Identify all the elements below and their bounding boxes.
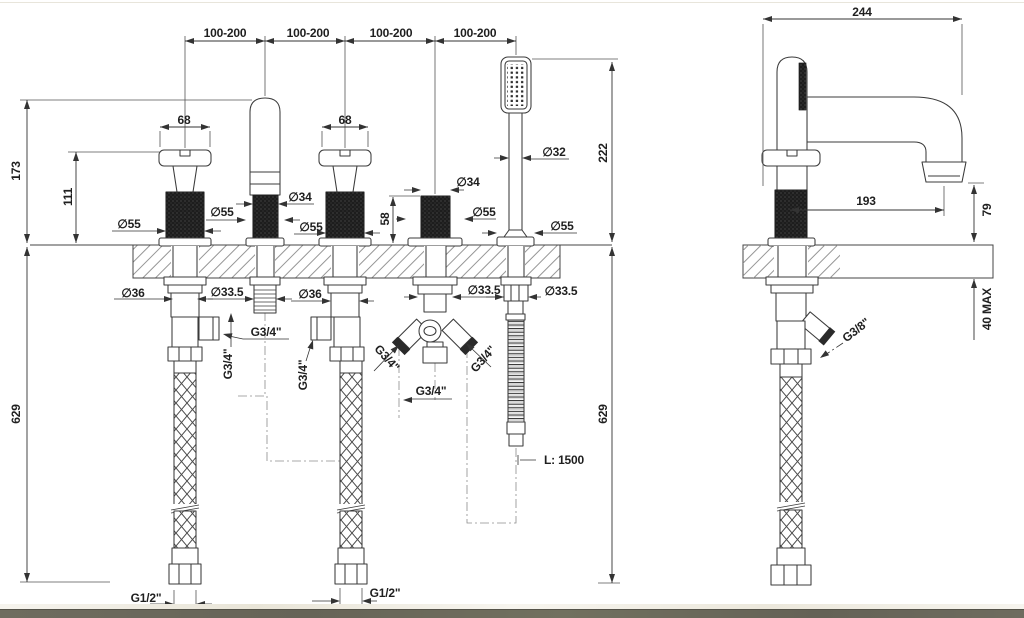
dim-dia-handle1-knurl: ∅55 [117,218,140,230]
dim-dia-diverter-knurl: ∅34 [456,176,479,188]
spout-front [246,98,284,313]
dim-deck-max-thickness: 40 MAX [981,288,993,330]
dim-thread-supply-right: G1/2" [370,587,401,599]
dim-spout-projection: 193 [856,195,875,207]
dim-dia-shower-base: ∅55 [550,220,573,232]
dim-handle-height: 111 [62,188,74,206]
dim-spout-reach: 244 [852,6,871,18]
bottom-strip [0,609,1024,618]
spout-side [807,97,962,162]
drawing-canvas [0,0,1024,618]
valve-handle-right [311,150,371,584]
dim-handshower-height: 222 [597,143,609,162]
dim-handle1-width: 68 [178,114,191,126]
dim-dia-spout-shank: ∅33.5 [211,286,244,298]
diverter [392,196,478,363]
dim-thread-handle2-outlet: G3/4" [297,360,309,391]
dim-outlet-height: 79 [981,204,993,217]
dim-thread-diverter-center: G3/4" [416,385,447,397]
dim-dia-spout-knurl: ∅34 [288,191,311,203]
dim-dia-diverter-shank: ∅33.5 [468,284,501,296]
cross-handle-side [762,150,820,166]
dim-thread-handle1-outlet: G3/4" [251,326,282,338]
dim-handle2-width: 68 [339,114,352,126]
dim-dia-handle1-shank: ∅36 [121,287,144,299]
dim-thread-spout-inlet: G3/4" [222,349,234,380]
dim-hose-length: L: 1500 [544,454,584,466]
dim-knurl-height: 58 [379,213,391,226]
dim-below-deck-left: 629 [10,404,22,423]
technical-drawing-page: 100-200 100-200 100-200 100-200 68 68 17… [0,0,1024,618]
leader-lines [112,158,843,604]
dim-spacing-1: 100-200 [204,27,247,39]
dim-spacing-3: 100-200 [370,27,413,39]
dim-thread-supply-left: G1/2" [131,592,162,604]
dim-dia-handle2-knurl: ∅55 [299,221,322,233]
dim-below-deck-right: 629 [597,404,609,423]
dim-spacing-4: 100-200 [454,27,497,39]
dim-dia-shower-shank: ∅33.5 [545,285,578,297]
dim-dia-spout-base: ∅55 [210,206,233,218]
dim-dia-diverter-base: ∅55 [472,206,495,218]
dim-spacing-2: 100-200 [287,27,330,39]
dim-dia-shower-body: ∅32 [542,146,565,158]
dim-total-height: 173 [10,161,22,180]
dim-dia-handle2-shank: ∅36 [298,288,321,300]
